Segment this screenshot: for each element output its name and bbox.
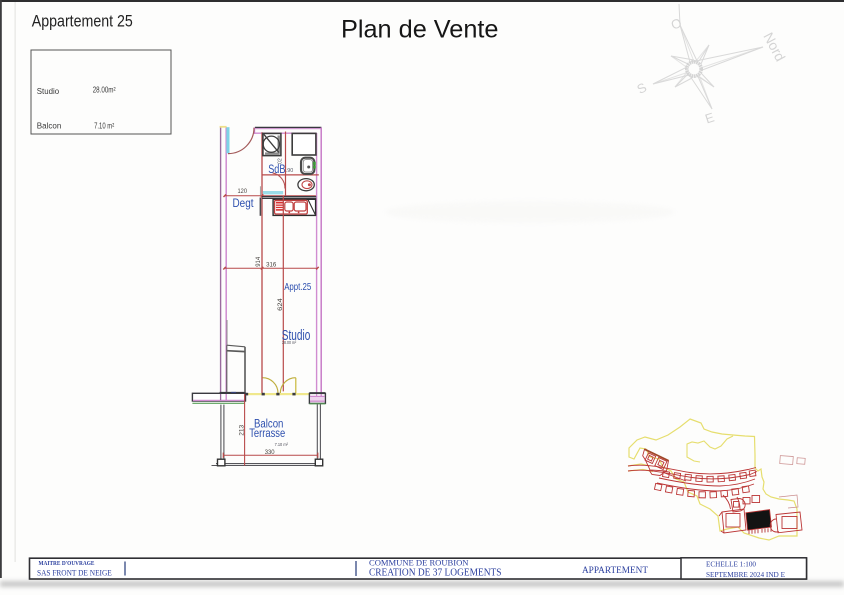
svg-text:SAS FRONT DE NEIGE: SAS FRONT DE NEIGE xyxy=(37,568,112,577)
svg-text:316: 316 xyxy=(266,261,276,268)
svg-text:28.00m²: 28.00m² xyxy=(93,86,116,95)
svg-text:Degt: Degt xyxy=(233,198,255,210)
svg-text:02: 02 xyxy=(278,158,284,164)
svg-text:914: 914 xyxy=(255,256,262,267)
svg-text:624: 624 xyxy=(277,298,284,311)
svg-text:120: 120 xyxy=(238,188,248,195)
svg-text:COMMUNE DE ROUBION: COMMUNE DE ROUBION xyxy=(369,558,469,567)
svg-text:213: 213 xyxy=(239,424,246,436)
svg-text:7.10 m²: 7.10 m² xyxy=(275,442,289,447)
svg-text:CREATION DE 37 LOGEMENTS: CREATION DE 37 LOGEMENTS xyxy=(369,568,502,579)
svg-text:28.00 m²: 28.00 m² xyxy=(282,340,297,345)
svg-text:.90: .90 xyxy=(286,168,294,174)
svg-text:7.10 m²: 7.10 m² xyxy=(94,121,114,130)
svg-text:APPARTEMENT: APPARTEMENT xyxy=(582,566,648,576)
svg-text:Balcon: Balcon xyxy=(37,120,62,130)
svg-text:Appartement 25: Appartement 25 xyxy=(32,13,133,31)
svg-text:MAITRE D'OUVRAGE: MAITRE D'OUVRAGE xyxy=(39,561,95,567)
svg-text:Plan de Vente: Plan de Vente xyxy=(341,16,499,43)
svg-text:Studio: Studio xyxy=(37,86,59,96)
svg-text:330: 330 xyxy=(265,449,275,456)
svg-text:ECHELLE 1:100: ECHELLE 1:100 xyxy=(706,560,756,569)
svg-text:Appt.25: Appt.25 xyxy=(284,282,311,293)
svg-text:SEPTEMBRE 2024 IND E: SEPTEMBRE 2024 IND E xyxy=(706,570,785,579)
svg-text:Terrasse: Terrasse xyxy=(249,426,285,440)
